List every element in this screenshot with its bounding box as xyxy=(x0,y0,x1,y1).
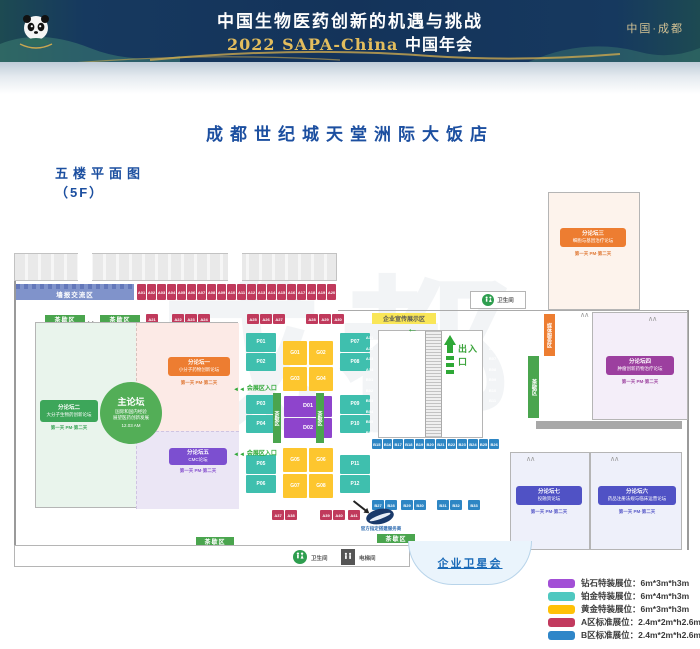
booth-label: B18 xyxy=(404,439,414,449)
restroom-icon xyxy=(482,294,494,306)
booth-group: A25A26A27 xyxy=(247,314,285,324)
booth-label: B06 xyxy=(363,428,376,438)
booth-label: A14 xyxy=(267,284,276,300)
platinum-booths: P01P02 xyxy=(246,333,276,371)
main-forum-circle: 主论坛 国际和国内经验 展望医药创新发展 12.03 AM xyxy=(100,382,162,444)
booth-label: A26 xyxy=(260,314,272,324)
banner-subtitle-cn: 中国年会 xyxy=(405,35,473,54)
legend-swatch-diamond xyxy=(548,579,575,588)
legend-label: 黄金特装展位：6m*3m*h3m xyxy=(581,603,689,615)
restroom-icon xyxy=(293,550,307,564)
booth-label: B32 xyxy=(450,500,462,510)
booth-label: A27 xyxy=(273,314,285,324)
booth-label: A28 xyxy=(306,314,318,324)
exit-arrow-icon xyxy=(444,335,456,374)
legend-label: 铂金特装展位：6m*4m*h3m xyxy=(581,590,689,602)
top-structure-gap xyxy=(228,252,242,282)
legend-swatch-gold xyxy=(548,605,575,614)
main-forum-line2: 展望医药创新发展 xyxy=(113,415,149,421)
booth-label: B05 xyxy=(363,417,376,427)
door-notch-icon xyxy=(610,448,618,466)
booth-label: A20 xyxy=(327,284,336,300)
booth-label: A05 xyxy=(177,284,186,300)
booth-label: B14 xyxy=(486,428,499,438)
booth-label: A41 xyxy=(348,510,360,520)
booth-label: A15 xyxy=(277,284,286,300)
forum-5-box: 分论坛五 CMC论坛 xyxy=(169,448,227,465)
forum-5-schedule: 第一天 PM·第二天 xyxy=(169,468,227,474)
door-notch-icon xyxy=(526,448,534,466)
booth-label: A35 xyxy=(486,333,499,343)
booth-label: B24 xyxy=(468,439,478,449)
booth-label: A17 xyxy=(297,284,306,300)
legend-row: A区标准展位：2.4m*2m*h2.6m xyxy=(548,616,700,628)
booth-label: G06 xyxy=(309,448,333,472)
booth-label: A11 xyxy=(237,284,246,300)
booth-group: B29B30 xyxy=(401,500,426,510)
booth-label: B03 xyxy=(363,396,376,406)
booth-label: A38 xyxy=(285,510,297,520)
banner-mist-gradient xyxy=(0,62,700,94)
booth-label: A33 xyxy=(363,354,376,364)
booth-label: A04 xyxy=(167,284,176,300)
elevator-label: 电梯间 xyxy=(359,554,376,562)
booth-row-top: A01A02A03A04A05A06A07A08A09A10A11A12A13A… xyxy=(137,284,336,300)
expo-entrance-bottom: 会展区入口 xyxy=(233,443,277,461)
booth-label: A02 xyxy=(147,284,156,300)
booth-label: B15 xyxy=(372,439,382,449)
escalator-icon xyxy=(425,331,442,437)
turn-arrow-icon: ← xyxy=(407,323,418,335)
forum-4-box: 分论坛四 肿瘤创新药物治疗论坛 xyxy=(606,356,674,375)
forum-6-box: 分论坛六 药品注册法规与临床运营论坛 xyxy=(598,486,676,505)
booth-label: B11 xyxy=(486,396,499,406)
booth-label: B01 xyxy=(363,375,376,385)
door-notch-icon xyxy=(648,308,656,326)
escalator-hall: ← 出入口 xyxy=(378,330,483,438)
legend-row: 铂金特装展位：6m*4m*h3m xyxy=(548,590,689,602)
forum-2-title: 分论坛二 xyxy=(58,405,80,412)
floor-plan-page: 中国生物医药创新的机遇与挑战 2022 SAPA-China 中国年会 中国·成… xyxy=(0,0,700,649)
booth-label: B09 xyxy=(486,375,499,385)
forum-3-name: 细胞与基因治疗论坛 xyxy=(573,238,614,244)
booth-label: A13 xyxy=(257,284,266,300)
booth-label: A10 xyxy=(227,284,236,300)
exit-label: 出入口 xyxy=(458,342,482,368)
booth-label: B29 xyxy=(401,500,413,510)
booth-label: A31 xyxy=(363,333,376,343)
booth-group: A28A29A30 xyxy=(306,314,344,324)
booth-label: A30 xyxy=(332,314,344,324)
booth-label: A36 xyxy=(486,344,499,354)
booth-label: G03 xyxy=(283,367,307,391)
booth-label: A40 xyxy=(333,510,345,520)
booth-group: A39A40 xyxy=(320,510,345,520)
platinum-booths: P03P04 xyxy=(246,395,276,433)
booth-label: B30 xyxy=(414,500,426,510)
expo-entrance-label: 会展区入口 xyxy=(247,383,277,392)
banner-location: 中国·成都 xyxy=(626,20,684,36)
booth-label: G05 xyxy=(283,448,307,472)
legend-label: 钻石特装展位：6m*3m*h3m xyxy=(581,577,689,589)
booth-label: A16 xyxy=(287,284,296,300)
forum-3-box: 分论坛三 细胞与基因治疗论坛 xyxy=(560,228,626,247)
booth-column-left: A31A32A33A34B01B02B03B04B05B06 xyxy=(363,333,376,437)
booth-label: A19 xyxy=(317,284,326,300)
expo-entrance-label: 会展区入口 xyxy=(247,448,277,457)
main-forum-title: 主论坛 xyxy=(117,397,144,409)
booth-label: B02 xyxy=(363,386,376,396)
thick-wall xyxy=(536,421,682,429)
booth-label: B31 xyxy=(437,500,449,510)
booth-label: A06 xyxy=(187,284,196,300)
forum-4-schedule: 第一天 PM·第二天 xyxy=(606,379,674,385)
expo-entrance-top: 会展区入口 xyxy=(233,378,277,396)
satellite-label: 企业卫星会 xyxy=(438,555,503,571)
booth-label: A29 xyxy=(319,314,331,324)
forum-7-name: 投融资论坛 xyxy=(538,496,561,502)
legend-swatch-zone-a xyxy=(548,618,575,627)
top-structure xyxy=(14,253,337,281)
booth-group: B31B32 xyxy=(437,500,462,510)
forum-1-schedule: 第一天 PM·第二天 xyxy=(168,380,230,386)
booth-label: P01 xyxy=(246,333,276,352)
tea-break-vertical-bar: 茶歇区 xyxy=(528,356,539,418)
restroom-label: 卫生间 xyxy=(311,554,328,562)
satellite-area: 企业卫星会 xyxy=(408,541,532,585)
media-service-bar: 媒体服务区 xyxy=(544,314,555,356)
booth-label: G08 xyxy=(309,474,333,498)
banner-year: 2022 SAPA-China xyxy=(227,35,398,54)
booth-label: B10 xyxy=(486,386,499,396)
contractor-caption: 官方指定搭建服务商 xyxy=(352,526,410,532)
booth-label: D01 xyxy=(284,396,332,417)
forum-6-name: 药品注册法规与临床运营论坛 xyxy=(608,496,667,502)
booth-label: B23 xyxy=(457,439,467,449)
booth-label: A08 xyxy=(207,284,216,300)
banner-subtitle: 2022 SAPA-China 中国年会 xyxy=(0,31,700,55)
elevator-icon xyxy=(341,549,355,565)
booth-label: A34 xyxy=(363,365,376,375)
gold-booths: G05G06G07G08 xyxy=(283,448,333,498)
booth-label: B04 xyxy=(363,407,376,417)
booth-label: B12 xyxy=(486,407,499,417)
booth-group: A41 xyxy=(348,510,360,520)
legend-row: 钻石特装展位：6m*3m*h3m xyxy=(548,577,689,589)
booth-label: B19 xyxy=(415,439,425,449)
booth-label: B16 xyxy=(383,439,393,449)
booth-label: G01 xyxy=(283,341,307,365)
legend-label: B区标准展位：2.4m*2m*h2.6m xyxy=(581,629,700,641)
booth-label: B21 xyxy=(436,439,446,449)
booth-label: A18 xyxy=(307,284,316,300)
booth-label: G04 xyxy=(309,367,333,391)
legend-swatch-platinum xyxy=(548,592,575,601)
forum-2-schedule: 第一天 PM·第二天 xyxy=(40,425,98,431)
forum-5-name: CMC论坛 xyxy=(188,457,207,463)
booth-label: D02 xyxy=(284,418,332,439)
booth-group: B33 xyxy=(468,500,480,510)
booth-label: G07 xyxy=(283,474,307,498)
diamond-booths: D01D02 xyxy=(284,396,332,438)
header-banner: 中国生物医药创新的机遇与挑战 2022 SAPA-China 中国年会 中国·成… xyxy=(0,0,700,62)
floor-code: （5F） xyxy=(55,182,104,201)
floor-label: 五楼平面图 xyxy=(55,163,145,182)
booth-row-bottom: B15B16B17B18B19B20B21B22B23B24B25B26 xyxy=(372,439,499,449)
tea-break-strip: 茶歇区 xyxy=(316,393,324,443)
booth-label: A01 xyxy=(137,284,146,300)
restroom-label: 卫生间 xyxy=(497,296,514,304)
hotel-title: 成都世纪城天堂洲际大饭店 xyxy=(0,120,700,145)
booth-label: P11 xyxy=(340,455,370,474)
poster-area: 墙报交流区 xyxy=(16,284,134,300)
booth-label: A32 xyxy=(363,344,376,354)
legend-row: B区标准展位：2.4m*2m*h2.6m xyxy=(548,629,700,641)
forum-3-schedule: 第一天 PM·第二天 xyxy=(560,251,626,257)
banner-title: 中国生物医药创新的机遇与挑战 xyxy=(0,7,700,32)
corridor-wall xyxy=(338,310,688,311)
booth-label: B13 xyxy=(486,417,499,427)
legend-label: A区标准展位：2.4m*2m*h2.6m xyxy=(581,616,700,628)
promo-area-label: 企业宣传展示区 xyxy=(372,313,436,324)
main-forum-time: 12.03 AM xyxy=(121,423,140,429)
booth-column-right: A35A36B07B08B09B10B11B12B13B14 xyxy=(486,333,499,437)
forum-1-box: 分论坛一 小分子药物创新论坛 xyxy=(168,357,230,376)
booth-label: A07 xyxy=(197,284,206,300)
forum-2-name: 大分子生物药创新论坛 xyxy=(47,412,92,418)
booth-label: A39 xyxy=(320,510,332,520)
forum-7-box: 分论坛七 投融资论坛 xyxy=(516,486,582,505)
booth-label: B25 xyxy=(479,439,489,449)
booth-label: P03 xyxy=(246,395,276,414)
booth-label: P02 xyxy=(246,353,276,372)
booth-label: P12 xyxy=(340,475,370,494)
booth-label: A12 xyxy=(247,284,256,300)
booth-group: A37A38 xyxy=(272,510,297,520)
booth-label: A25 xyxy=(247,314,259,324)
entrance-arrow-icon xyxy=(233,443,245,461)
booth-label: A37 xyxy=(272,510,284,520)
forum-7-schedule: 第一天 PM·第二天 xyxy=(516,509,582,515)
booth-label: A03 xyxy=(157,284,166,300)
booth-label: G02 xyxy=(309,341,333,365)
legend-row: 黄金特装展位：6m*3m*h3m xyxy=(548,603,689,615)
entrance-arrow-icon xyxy=(233,378,245,396)
booth-label: B20 xyxy=(425,439,435,449)
booth-label: A09 xyxy=(217,284,226,300)
forum-2-box: 分论坛二 大分子生物药创新论坛 xyxy=(40,400,98,422)
bottom-corridor: 卫生间 电梯间 xyxy=(14,545,410,567)
forum-4-name: 肿瘤创新药物治疗论坛 xyxy=(618,366,663,372)
gold-booths: G01G02G03G04 xyxy=(283,341,333,391)
door-notch-icon xyxy=(580,304,588,322)
booth-label: B08 xyxy=(486,365,499,375)
restroom-top: 卫生间 xyxy=(470,291,526,309)
booth-label: P06 xyxy=(246,475,276,494)
legend-swatch-zone-b xyxy=(548,631,575,640)
booth-label: P04 xyxy=(246,415,276,434)
booth-label: B07 xyxy=(486,354,499,364)
booth-label: B17 xyxy=(393,439,403,449)
booth-label: B33 xyxy=(468,500,480,510)
forum-1-name: 小分子药物创新论坛 xyxy=(179,367,220,373)
tea-break-strip: 茶歇区 xyxy=(273,393,281,443)
booth-label: B22 xyxy=(447,439,457,449)
booth-label: B26 xyxy=(489,439,499,449)
poster-area-label: 墙报交流区 xyxy=(16,289,134,299)
forum-6-schedule: 第一天 PM·第二天 xyxy=(598,509,676,515)
platinum-booths: P11P12 xyxy=(340,455,370,493)
top-structure-gap xyxy=(78,252,92,282)
